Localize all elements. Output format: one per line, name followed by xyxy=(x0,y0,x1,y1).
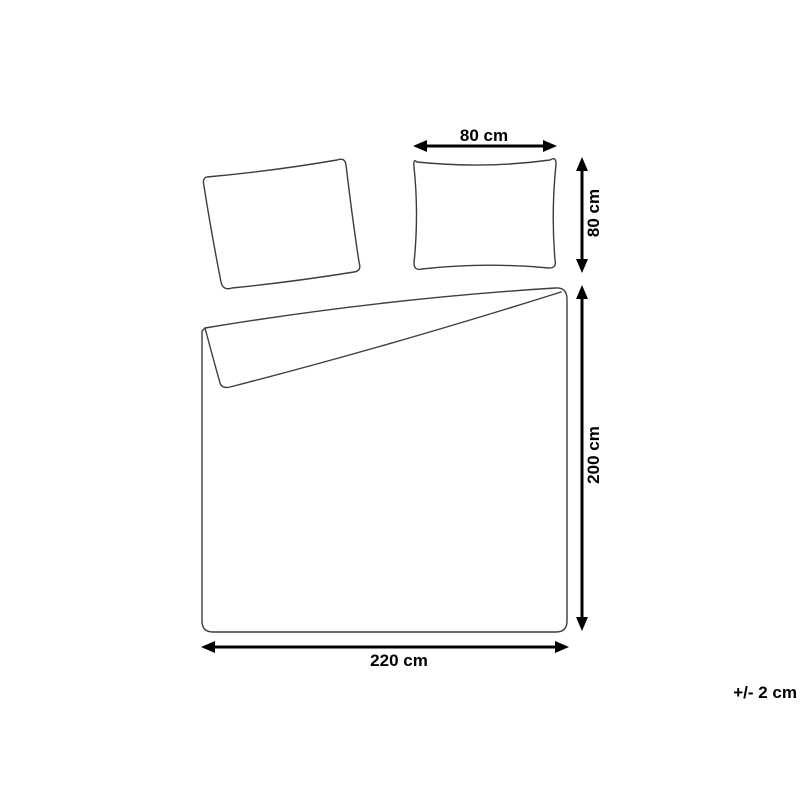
tolerance-note: +/- 2 cm xyxy=(733,683,797,702)
bedding-dimension-diagram: 80 cm 80 cm 200 cm 220 cm +/- 2 cm xyxy=(0,0,800,800)
dimension-diagram-page: 80 cm 80 cm 200 cm 220 cm +/- 2 cm xyxy=(0,0,800,800)
pillow-left-outline xyxy=(203,159,359,289)
dimension-labels: 80 cm 80 cm 200 cm 220 cm +/- 2 cm xyxy=(370,126,797,702)
duvet-fold-line xyxy=(205,292,561,388)
arrowhead-left-icon xyxy=(413,140,427,152)
arrowhead-left-icon xyxy=(201,641,215,653)
arrowhead-down-icon xyxy=(576,617,588,631)
arrowhead-right-icon xyxy=(555,641,569,653)
arrowhead-up-icon xyxy=(576,157,588,171)
arrowhead-right-icon xyxy=(543,140,557,152)
pillow-width-label: 80 cm xyxy=(460,126,508,145)
dimension-lines xyxy=(207,146,582,647)
duvet-width-label: 220 cm xyxy=(370,651,428,670)
duvet-height-label: 200 cm xyxy=(584,426,603,484)
product-outlines xyxy=(202,159,567,632)
pillow-right-outline xyxy=(414,159,556,270)
pillow-height-label: 80 cm xyxy=(584,189,603,237)
dimension-arrowheads xyxy=(201,140,588,653)
arrowhead-down-icon xyxy=(576,259,588,273)
arrowhead-up-icon xyxy=(576,285,588,299)
duvet-outline xyxy=(202,288,567,632)
